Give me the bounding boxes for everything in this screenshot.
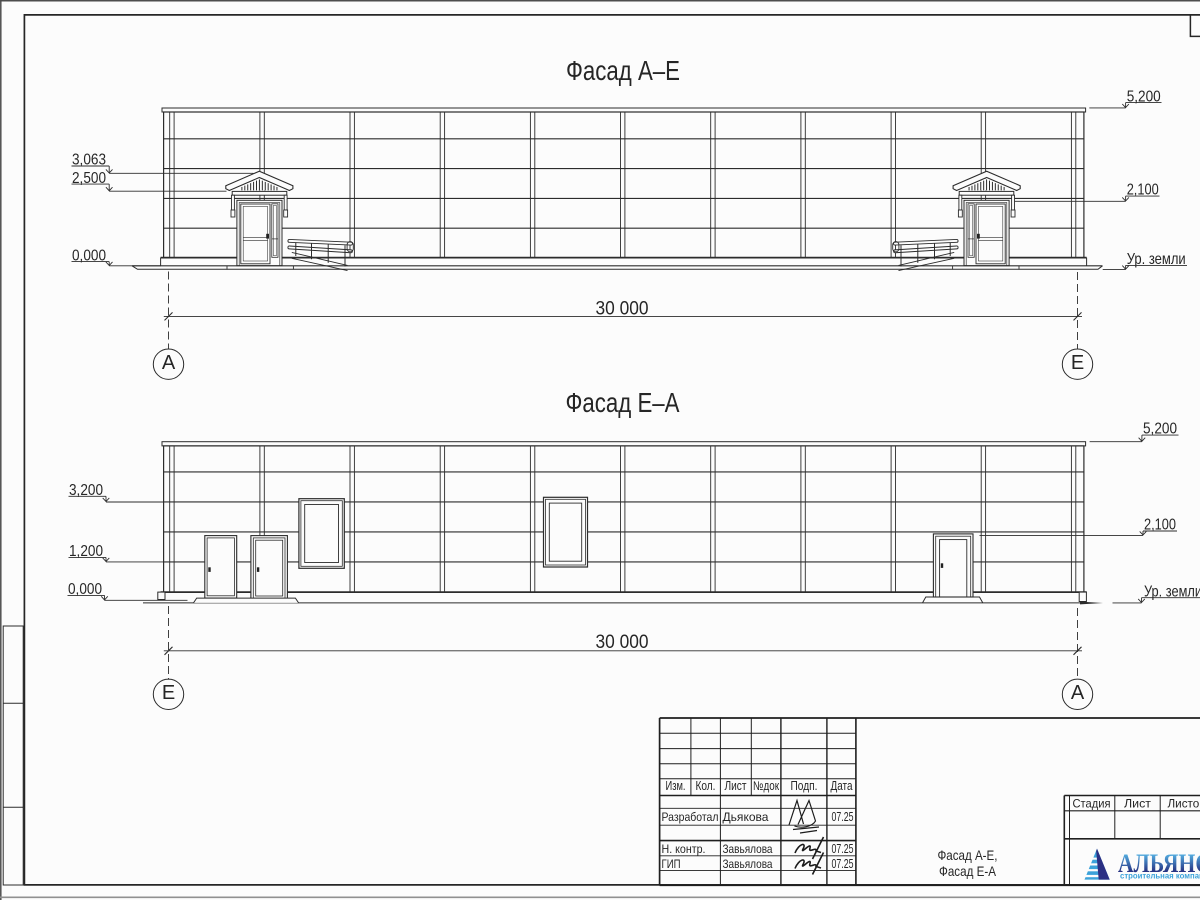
svg-text:Стадия: Стадия (1073, 796, 1111, 810)
svg-text:Е: Е (1071, 352, 1084, 374)
svg-text:Дата: Дата (831, 779, 853, 793)
svg-text:07.25: 07.25 (832, 857, 854, 871)
svg-text:07.25: 07.25 (832, 842, 854, 856)
svg-text:Фасад Е-А: Фасад Е-А (939, 863, 997, 879)
svg-text:07.25: 07.25 (832, 810, 854, 824)
svg-text:Подп.: Подп. (791, 779, 818, 793)
svg-text:Лист: Лист (725, 779, 747, 793)
svg-text:Завьялова: Завьялова (723, 857, 773, 871)
svg-text:Разработал: Разработал (662, 810, 719, 824)
svg-text:Изм.: Изм. (666, 779, 686, 793)
svg-text:Листов: Листов (1168, 796, 1200, 810)
svg-text:А: А (1071, 682, 1085, 704)
svg-text:Лист: Лист (1124, 796, 1152, 810)
svg-text:Е: Е (162, 682, 175, 704)
svg-text:ГИП: ГИП (662, 857, 681, 871)
svg-text:А: А (162, 352, 176, 374)
svg-text:Н. контр.: Н. контр. (662, 842, 706, 856)
svg-text:Фасад А–Е: Фасад А–Е (566, 55, 680, 86)
svg-text:Фасад Е–А: Фасад Е–А (566, 387, 680, 418)
svg-text:Фасад А-Е,: Фасад А-Е, (938, 847, 998, 863)
svg-text:30 000: 30 000 (596, 632, 649, 653)
svg-text:строительная компания: строительная компания (1120, 872, 1200, 881)
svg-text:Завьялова: Завьялова (723, 842, 773, 856)
svg-text:30 000: 30 000 (596, 299, 649, 320)
svg-text:Кол.: Кол. (696, 779, 716, 793)
svg-text:№док: №док (753, 779, 779, 793)
svg-text:Дьякова: Дьякова (723, 810, 769, 824)
